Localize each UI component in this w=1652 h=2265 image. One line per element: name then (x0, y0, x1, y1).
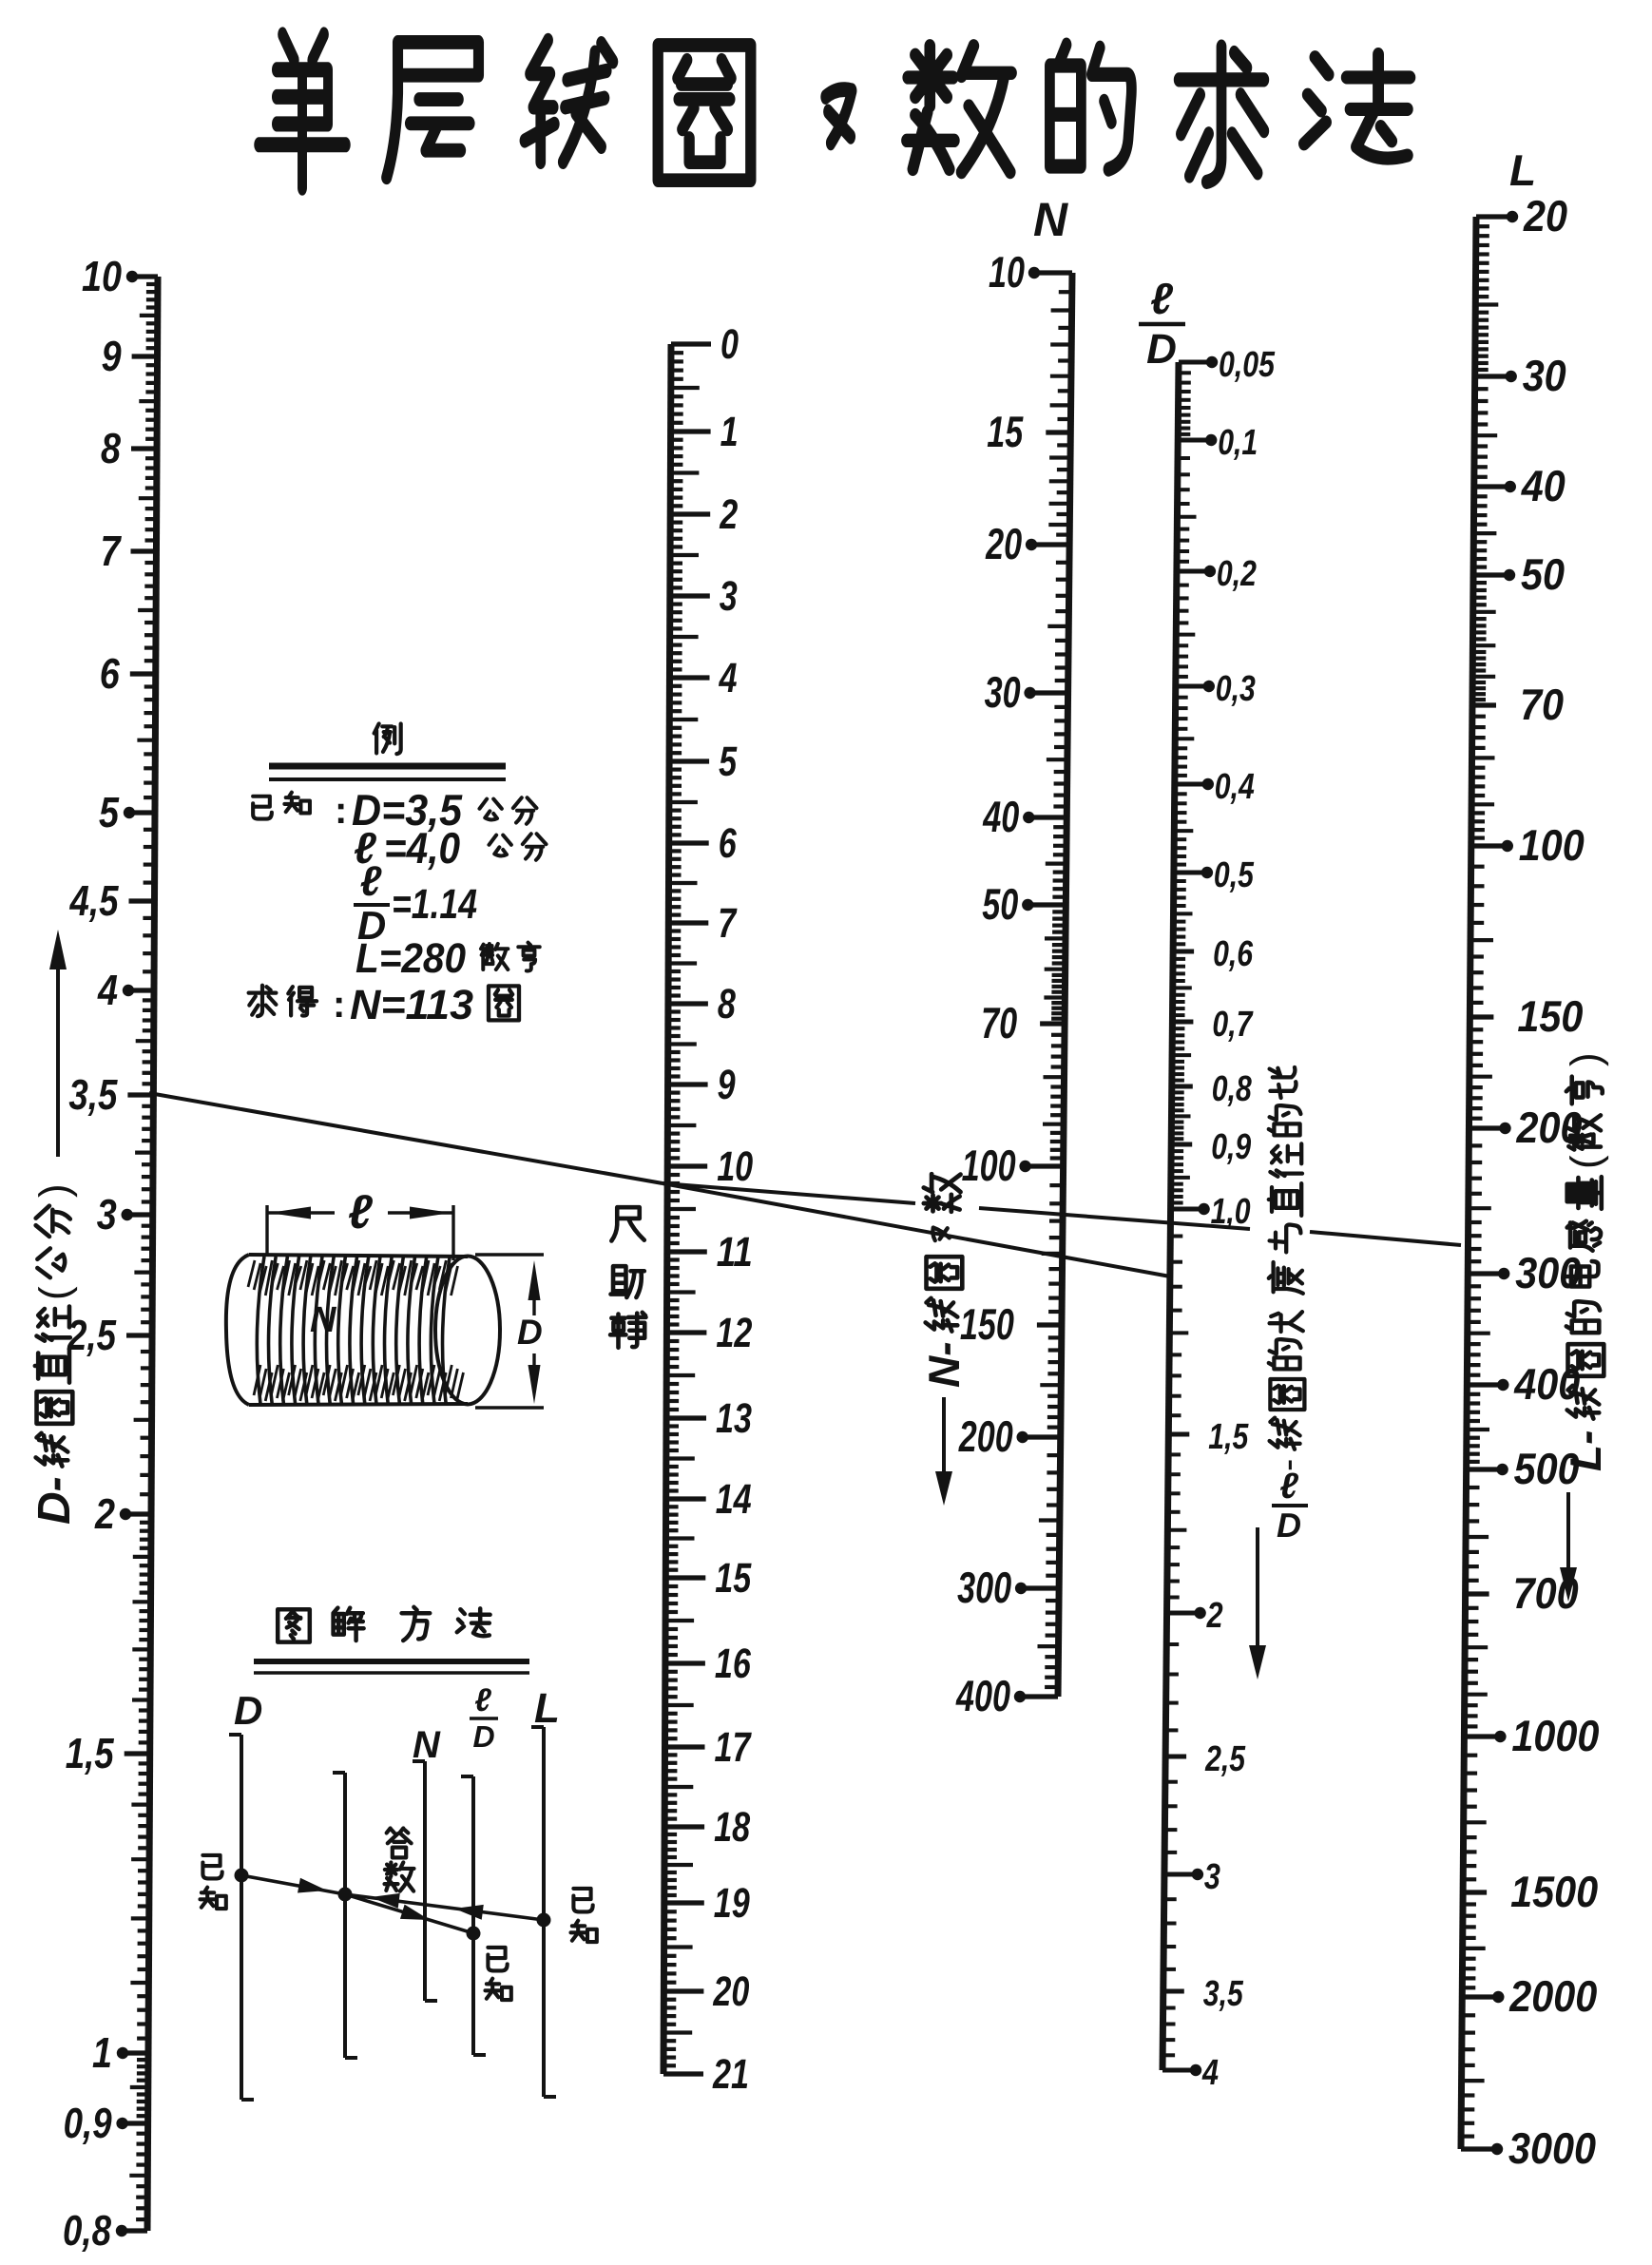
svg-text:N: N (310, 1300, 337, 1340)
svg-text:14: 14 (716, 1476, 752, 1523)
svg-text:150: 150 (960, 1299, 1014, 1349)
svg-text:0,9: 0,9 (64, 2099, 112, 2147)
svg-text:3: 3 (1204, 1857, 1220, 1897)
svg-text:200: 200 (958, 1411, 1013, 1461)
svg-text:15: 15 (987, 407, 1024, 456)
svg-text:13: 13 (716, 1395, 752, 1442)
svg-text:40: 40 (1521, 461, 1566, 510)
svg-text:L=280: L=280 (355, 935, 466, 982)
svg-text:2,5: 2,5 (1204, 1739, 1245, 1779)
svg-text:ℓ: ℓ (474, 1682, 491, 1718)
svg-text:12: 12 (716, 1310, 752, 1356)
svg-text:ℓ: ℓ (348, 1185, 374, 1238)
svg-text:300: 300 (957, 1563, 1011, 1612)
svg-text:2000: 2000 (1508, 1971, 1597, 2021)
svg-text:150: 150 (1517, 991, 1583, 1041)
svg-text:20: 20 (713, 1968, 750, 2015)
svg-text:3: 3 (720, 573, 738, 620)
svg-text:4: 4 (97, 966, 118, 1014)
svg-text:7: 7 (101, 527, 123, 575)
svg-text:9: 9 (718, 1062, 736, 1108)
svg-text:4: 4 (719, 655, 738, 701)
svg-text:ℓ: ℓ (1150, 274, 1173, 323)
svg-text:100: 100 (962, 1141, 1016, 1190)
svg-text:70: 70 (981, 998, 1017, 1047)
svg-text:21: 21 (712, 2051, 749, 2098)
svg-text:): ) (31, 1183, 78, 1198)
svg-text:(: ( (1563, 1155, 1609, 1169)
svg-text:1500: 1500 (1510, 1867, 1598, 1916)
svg-text:-: - (1267, 1459, 1309, 1471)
svg-text:30: 30 (985, 667, 1021, 717)
svg-text:(: ( (31, 1286, 78, 1300)
svg-text:ℓ: ℓ (360, 858, 382, 905)
svg-text:1: 1 (720, 409, 739, 455)
svg-text:0,6: 0,6 (1213, 934, 1254, 974)
svg-text:9: 9 (102, 332, 122, 380)
svg-text:20: 20 (985, 519, 1022, 568)
svg-text:40: 40 (983, 792, 1020, 841)
svg-text:D: D (234, 1688, 262, 1733)
svg-text:D: D (1277, 1506, 1301, 1545)
svg-text:1,5: 1,5 (66, 1729, 115, 1777)
svg-text:50: 50 (1521, 549, 1565, 599)
svg-text:2: 2 (719, 491, 738, 538)
svg-text:8: 8 (101, 424, 121, 472)
svg-text:400: 400 (955, 1671, 1010, 1720)
svg-text:0,4: 0,4 (1215, 767, 1255, 807)
svg-text:L: L (534, 1685, 560, 1732)
svg-text:70: 70 (1520, 680, 1564, 729)
svg-text::: : (335, 790, 347, 832)
svg-text:11: 11 (717, 1229, 753, 1276)
svg-text:L-: L- (1561, 1430, 1610, 1471)
svg-text:ℓ: ℓ (1279, 1467, 1298, 1507)
svg-text:0,8: 0,8 (63, 2206, 111, 2255)
svg-text:N: N (413, 1724, 441, 1766)
svg-text:30: 30 (1523, 351, 1566, 400)
svg-text:0,05: 0,05 (1219, 345, 1276, 385)
svg-text:1: 1 (92, 2028, 112, 2077)
svg-text:3000: 3000 (1508, 2123, 1596, 2173)
svg-text:3: 3 (97, 1190, 117, 1238)
svg-text:): ) (1563, 1052, 1609, 1066)
svg-text:D: D (1146, 326, 1177, 373)
svg-text:D-: D- (29, 1476, 80, 1525)
svg-text:2,5: 2,5 (67, 1311, 117, 1359)
svg-text:17: 17 (715, 1724, 753, 1771)
svg-text:5: 5 (719, 739, 737, 785)
svg-text:D: D (472, 1719, 494, 1754)
svg-text:0,8: 0,8 (1212, 1069, 1253, 1109)
svg-text:100: 100 (1519, 820, 1585, 870)
svg-text:0,3: 0,3 (1216, 669, 1256, 709)
svg-text:=4,0: =4,0 (384, 823, 460, 873)
svg-text:D: D (517, 1313, 543, 1352)
svg-text:2: 2 (94, 1489, 115, 1538)
svg-text:3,5: 3,5 (1203, 1974, 1244, 2014)
svg-text:6: 6 (100, 649, 121, 698)
svg-text::: : (333, 984, 345, 1026)
svg-text:0,9: 0,9 (1211, 1127, 1251, 1167)
svg-text:0,1: 0,1 (1218, 423, 1258, 463)
svg-text:4,5: 4,5 (69, 876, 120, 925)
svg-text:8: 8 (718, 981, 736, 1027)
svg-text:4: 4 (1201, 2053, 1219, 2093)
svg-text:7: 7 (718, 900, 738, 947)
svg-text:0,5: 0,5 (1214, 855, 1255, 895)
svg-text:0,7: 0,7 (1212, 1005, 1253, 1045)
svg-text:0: 0 (720, 321, 739, 368)
svg-text:16: 16 (715, 1641, 751, 1687)
svg-text:N=113: N=113 (350, 982, 473, 1028)
svg-text:6: 6 (719, 820, 737, 867)
svg-text:3,5: 3,5 (68, 1070, 118, 1119)
svg-text:15: 15 (715, 1555, 751, 1602)
svg-text:5: 5 (99, 788, 120, 836)
svg-text:1,5: 1,5 (1208, 1417, 1249, 1457)
svg-text:L: L (1509, 145, 1536, 195)
svg-text:10: 10 (717, 1143, 753, 1190)
svg-text:1000: 1000 (1511, 1711, 1599, 1760)
svg-text:50: 50 (982, 879, 1018, 929)
svg-text:0,2: 0,2 (1217, 554, 1257, 594)
svg-text:19: 19 (714, 1880, 750, 1927)
svg-text:=1.14: =1.14 (392, 881, 477, 928)
svg-text:10: 10 (82, 252, 122, 300)
svg-text:10: 10 (989, 247, 1025, 297)
svg-text:N: N (1033, 193, 1068, 246)
svg-text:20: 20 (1523, 191, 1567, 240)
svg-text:2: 2 (1206, 1596, 1223, 1636)
svg-text:18: 18 (714, 1804, 750, 1851)
svg-text:N-: N- (919, 1341, 969, 1388)
